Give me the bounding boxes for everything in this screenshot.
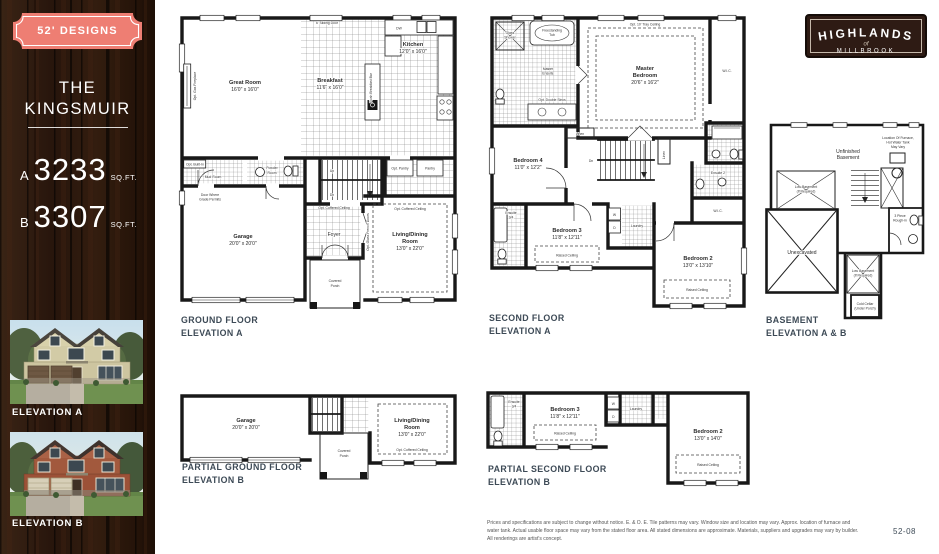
coffered-label: Opt. Coffered Ceiling [394,207,426,211]
kitchen-dims: 12'0" x 16'0" [399,49,427,55]
living-dining-dims: 13'0" x 22'0" [398,432,426,438]
raised-ceiling-b2-label: Raised Ceiling [697,463,719,467]
tub-label2: Tub [549,33,555,37]
great-room-label: Great Room [229,80,261,86]
elevation-a-label: ELEVATION A [12,407,83,418]
foyer-label: Foyer [328,232,341,238]
plan-title: THE KINGSMUIR [0,78,155,120]
garage-dims: 20'0" x 20'0" [232,425,260,431]
plan-title-line2: KINGSMUIR [0,99,155,120]
opt-built-in-label: Opt. Built-In [186,163,204,167]
title-divider [28,127,128,128]
brochure-page: 52' DESIGNS THE KINGSMUIR A 3233 SQ.FT. … [0,0,939,554]
sidebar: 52' DESIGNS THE KINGSMUIR A 3233 SQ.FT. … [0,0,155,554]
glass-shower-label2: Shower [504,36,516,40]
low-basement2-label: Low Basement [852,269,874,273]
unfinished-label2: Basement [837,155,860,161]
up-label: Up [330,169,334,173]
wic2-label: W.I.C. [713,209,722,213]
master-ensuite-label: Master [543,67,554,71]
plan-a-letter: A [20,168,29,183]
tray-label: Opt. 10' Tray Ceiling [630,23,661,27]
living-dining-label2: Room [404,425,420,431]
raised-ceiling-b3-label: Raised Ceiling [554,432,576,436]
plan-a-unit: SQ.FT. [111,173,137,182]
linen-label: Linen [576,132,584,136]
living-dining-label: Living/Dining [394,418,430,424]
designs-badge-label: 52' DESIGNS [12,12,143,50]
plan-a-sqft: 3233 [34,152,107,188]
ensuite34-label2: 3/4 [512,405,517,409]
elevation-a-rendering [10,320,143,404]
kitchen-label: Kitchen [403,42,424,48]
raised-ceiling-b3-label: Raised Ceiling [556,254,578,258]
island-label: Flush Breakfast Bar [369,72,373,103]
bedroom2-dims: 13'0" x 13'10" [683,263,713,269]
caption-line: PARTIAL GROUND FLOOR [182,461,302,474]
opt-pantry-label: Opt. Pantry [391,167,408,171]
bedroom2-label: Bedroom 2 [693,429,722,435]
caption-line: SECOND FLOOR [489,312,565,325]
plan-b-letter: B [20,215,29,230]
stairs [312,398,340,431]
great-room-fixtures [184,64,191,108]
partial-second-b-caption: PARTIAL SECOND FLOOR ELEVATION B [488,463,607,489]
furnace-note2: Hot Water Tank [886,141,909,145]
linen2-label: Linen [662,151,666,159]
covered-porch-label: Covered [329,279,342,283]
designs-badge: 52' DESIGNS [12,12,143,50]
low-basement-label2: (If Required) [797,190,816,194]
dw-label: DW [396,27,402,31]
coffered-label: Opt. Coffered Ceiling [396,448,428,452]
plan-b-sqft: 3307 [34,199,107,235]
garage-label: Garage [236,418,255,424]
laundry-label: Laundry [630,407,643,411]
caption-line: ELEVATION B [488,476,607,489]
coffered-label-foyer: Opt. Coffered Ceiling [318,206,350,210]
furnace-note: Location Of Furnace, [882,136,914,140]
dn-label: Dn [589,159,593,163]
door-grade-label: Door Where [201,193,219,197]
ensuite34-label: Ensuite [508,400,519,404]
elevation-b-label: ELEVATION B [12,518,83,529]
living-dining-label: Living/Dining [392,232,428,238]
stairs [851,168,903,208]
caption-line: PARTIAL SECOND FLOOR [488,463,607,476]
tiled-floors [344,398,369,432]
elevation-b-rendering [10,432,143,516]
bedroom2-label: Bedroom 2 [683,256,712,262]
laundry-label: Laundry [631,224,644,228]
driveway [26,496,74,516]
breakfast-label: Breakfast [317,78,343,84]
basement-caption: BASEMENT ELEVATION A & B [766,314,847,340]
bedroom3-dims: 11'8" x 12'11" [550,414,580,420]
caption-line: ELEVATION B [182,474,302,487]
bedroom3-dims: 11'8" x 12'11" [552,235,582,241]
great-room-dims: 16'0" x 16'0" [231,87,259,93]
pantry-label: Pantry [425,167,435,171]
cold-cellar-label: Cold Cellar [857,302,875,306]
page-number: 52-08 [893,527,916,536]
logo-place: MILLBROOK [837,49,895,55]
ground-floor-a-plan: Great Room 16'0" x 16'0" Breakfast 11'6"… [170,8,465,313]
caption-line: GROUND FLOOR [181,314,258,327]
mud-room-label: Mud Room [205,175,222,179]
tiled-floors [184,20,454,256]
breakfast-dims: 11'6" x 16'0" [316,85,343,91]
plan-title-line1: THE [0,78,155,99]
covered-porch-label: Covered [338,449,351,453]
bedroom3-label: Bedroom 3 [550,407,579,413]
bedroom4-label: Bedroom 4 [513,158,543,164]
elevation-b-photo [10,432,143,516]
sliding-door-label: 6' Sliding Door [316,21,339,25]
bedroom3-label: Bedroom 3 [552,228,581,234]
raised-ceiling-b2-label: Raised Ceiling [686,288,708,292]
ensuite2-label: Ensuite 2 [711,171,725,175]
stairs [598,140,654,180]
door-grade-label2: Grade Permits [199,198,221,202]
garage-dims: 20'0" x 20'0" [229,241,257,247]
ensuite34-label: Ensuite [505,211,516,215]
elevation-a-photo [10,320,143,404]
ensuite34-label2: 3/4 [509,216,514,220]
sqft-plan-a: A 3233 SQ.FT. [20,152,150,188]
basement-plan: Unfinished Basement Unexcavated Low Base… [763,113,931,328]
garage-label: Garage [233,234,252,240]
caption-line: BASEMENT [766,314,847,327]
bedroom4-dims: 11'0" x 12'2" [514,165,541,171]
partial-ground-b-caption: PARTIAL GROUND FLOOR ELEVATION B [182,461,302,487]
powder-label: Powder [266,166,278,170]
bedroom2-dims: 13'0" x 14'0" [694,436,722,442]
ground-floor-a-caption: GROUND FLOOR ELEVATION A [181,314,258,340]
builder-logo-plaque: HIGHLANDS of MILLBROOK [805,14,927,58]
living-dining-dims: 13'0" x 22'0" [396,246,424,252]
plan-b-unit: SQ.FT. [111,220,137,229]
furnace-note3: May Vary [891,145,905,149]
legal-disclaimer: Prices and specifications are subject to… [487,519,859,543]
low-basement-label: Low Basement [795,185,817,189]
master-ensuite-label2: Ensuite [542,72,553,76]
french-doors-label: Opt. Glass French Doors [366,213,370,251]
glass-shower-label: Glass [506,31,515,35]
tub-label: Freestanding [542,29,562,33]
caption-line: ELEVATION A [489,325,565,338]
master-label: Master [636,66,655,72]
master-dims: 20'6" x 16'2" [631,80,659,86]
caption-line: ELEVATION A [181,327,258,340]
rough-in-label2: Rough-in [893,219,907,223]
covered-porch-label2: Porch [331,284,340,288]
living-dining-label2: Room [402,239,418,245]
caption-line: ELEVATION A & B [766,327,847,340]
room-labels: Unfinished Basement Unexcavated Low Base… [787,136,913,311]
low-basement2-label2: (If Required) [854,274,873,278]
builder-logo: HIGHLANDS of MILLBROOK [805,14,927,58]
second-floor-a-plan: Master Bedroom 20'6" x 16'2" Opt. 10' Tr… [478,8,758,313]
dn-label: Dn [330,193,334,197]
cold-cellar-label2: (Under Porch) [854,307,875,311]
powder-label2: Room [267,171,276,175]
rough-in-label: 3 Piece [894,214,905,218]
covered-porch-label2: Porch [340,454,349,458]
driveway [26,384,74,404]
master-label2: Bedroom [633,73,658,79]
wic-label: W.I.C. [722,69,731,73]
double-sinks-label: Opt. Double Sinks [538,98,566,102]
sqft-plan-b: B 3307 SQ.FT. [20,199,150,235]
fireplace-label: Opt. Gas Fireplace [193,72,197,101]
unexcavated-label: Unexcavated [787,250,816,256]
second-floor-a-caption: SECOND FLOOR ELEVATION A [489,312,565,338]
